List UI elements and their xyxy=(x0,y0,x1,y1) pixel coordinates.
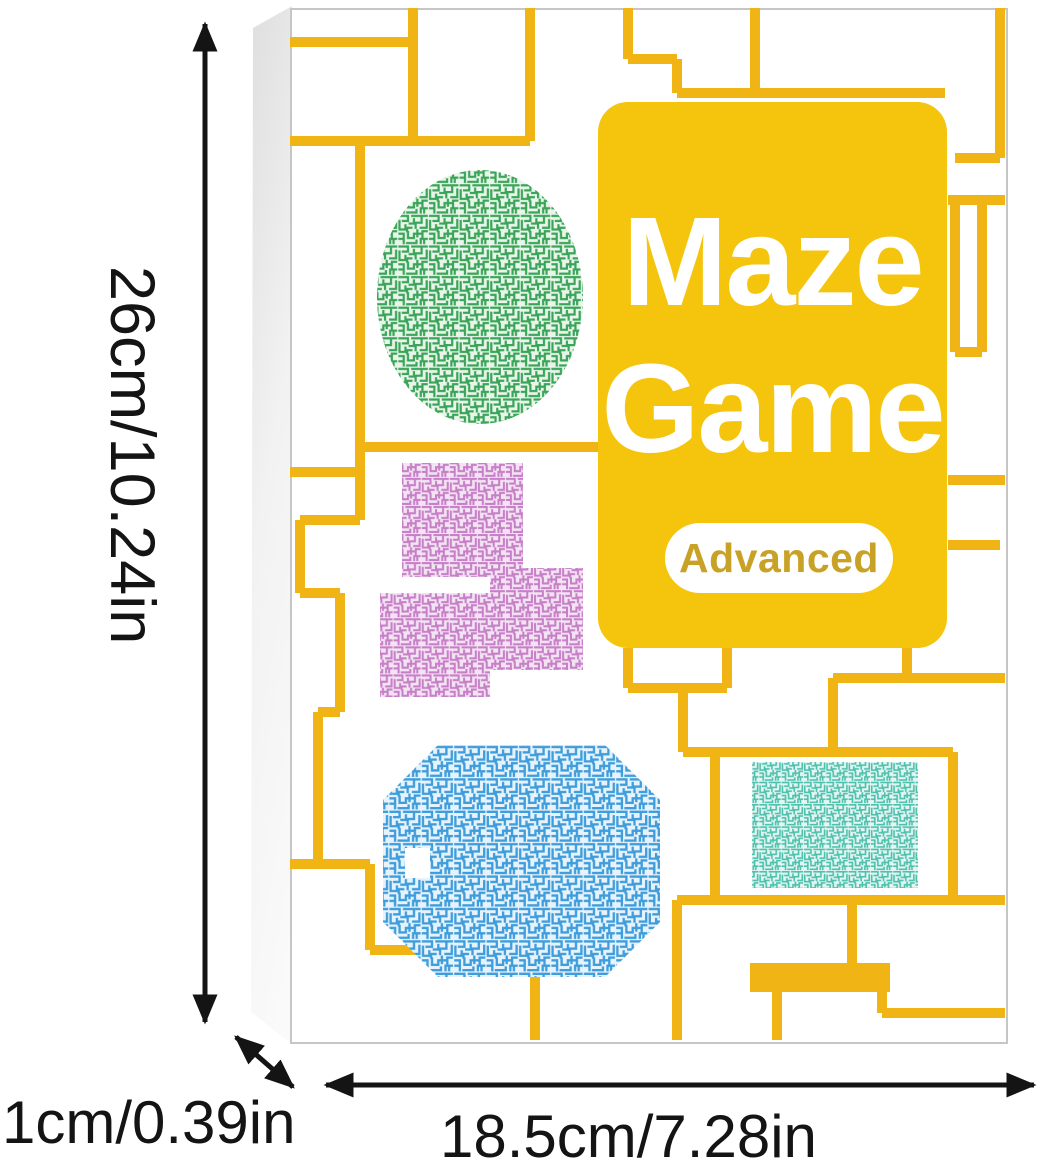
product-dimension-image: Maze Game Advanced 26cm/10.24in 1cm/0.39… xyxy=(0,0,1048,1173)
depth-dimension-label: 1cm/0.39in xyxy=(2,1088,296,1157)
height-dimension-label: 26cm/10.24in xyxy=(96,266,168,644)
depth-arrow xyxy=(236,1037,293,1087)
width-dimension-label: 18.5cm/7.28in xyxy=(440,1102,817,1171)
